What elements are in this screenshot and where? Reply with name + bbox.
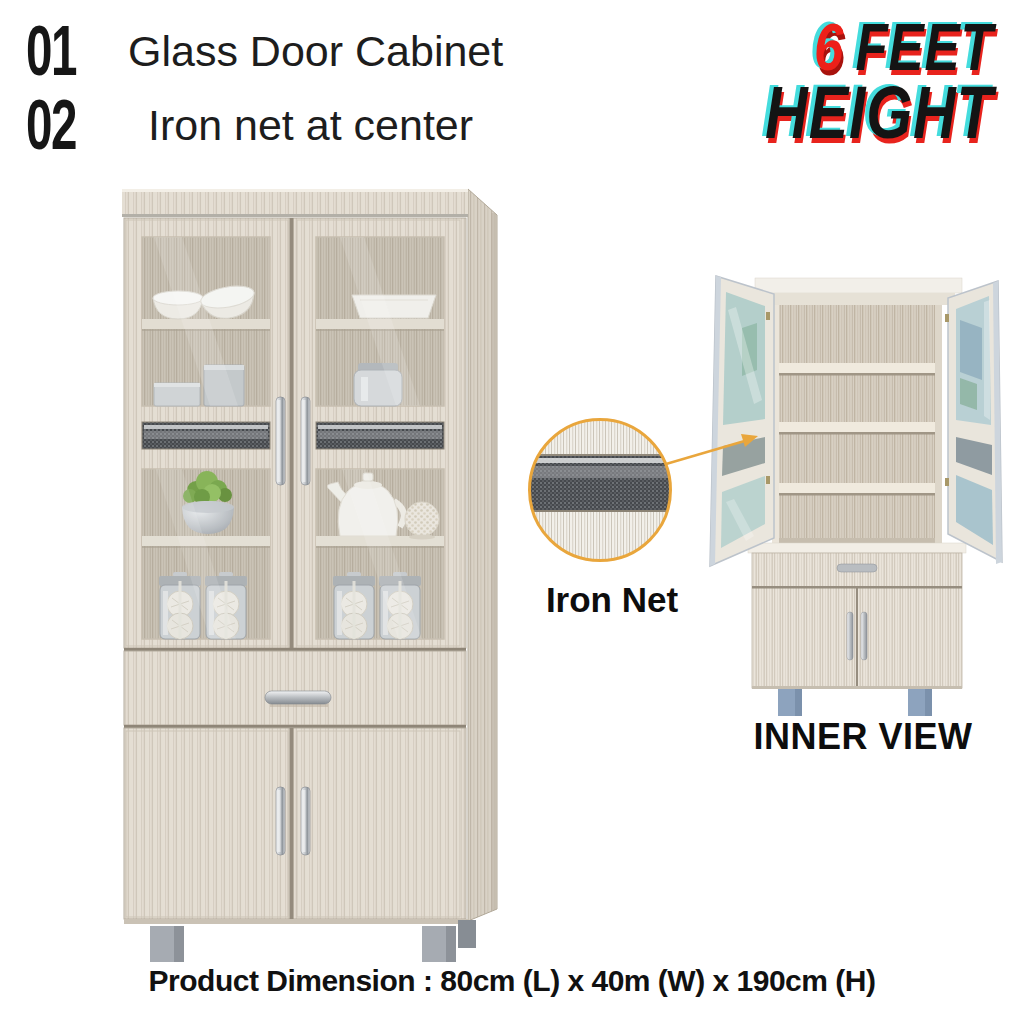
iron-net-callout [524, 414, 676, 566]
cabinet-top [122, 189, 468, 217]
inner-top-cap [755, 278, 962, 305]
feature-label-1: Glass Door Cabinet [128, 27, 503, 76]
inner-right-door-open [945, 281, 1002, 564]
height-badge: 6FEET HEIGHT [766, 16, 994, 148]
inner-drawer-handle [837, 564, 877, 572]
iron-net-mesh [524, 454, 676, 512]
height-badge-line1: 6FEET [766, 16, 994, 78]
inner-interior [772, 305, 942, 545]
main-cabinet-photo [120, 185, 510, 965]
product-dimension-text: Product Dimension : 80cm (L) x 40m (W) x… [0, 964, 1024, 998]
cabinet-legs [150, 920, 476, 962]
drawer-handle [265, 691, 331, 704]
inner-view-photo [702, 250, 1012, 720]
feature-item-1: 01 Glass Door Cabinet [26, 14, 503, 88]
inner-lower-cabinet [748, 543, 966, 716]
badge-word2: HEIGHT [766, 71, 994, 154]
inner-legs [778, 689, 932, 716]
bottom-doors [124, 728, 468, 924]
height-badge-line2: HEIGHT [766, 78, 994, 148]
feature-number-1: 01 [26, 16, 78, 86]
glass-doors [124, 218, 466, 648]
feature-item-2: 02 Iron net at center [26, 88, 503, 162]
iron-net-label: Iron Net [512, 580, 712, 620]
inner-view-label: INNER VIEW [713, 716, 1013, 758]
feature-list: 01 Glass Door Cabinet 02 Iron net at cen… [26, 14, 503, 162]
cabinet-side-panel [468, 189, 497, 921]
feature-number-2: 02 [26, 90, 78, 160]
drawer [124, 648, 466, 728]
product-listing-image: { "canvas": {"background": "#ffffff"}, "… [0, 0, 1024, 1024]
feature-label-2: Iron net at center [148, 101, 473, 150]
inner-left-door-open [710, 276, 774, 566]
